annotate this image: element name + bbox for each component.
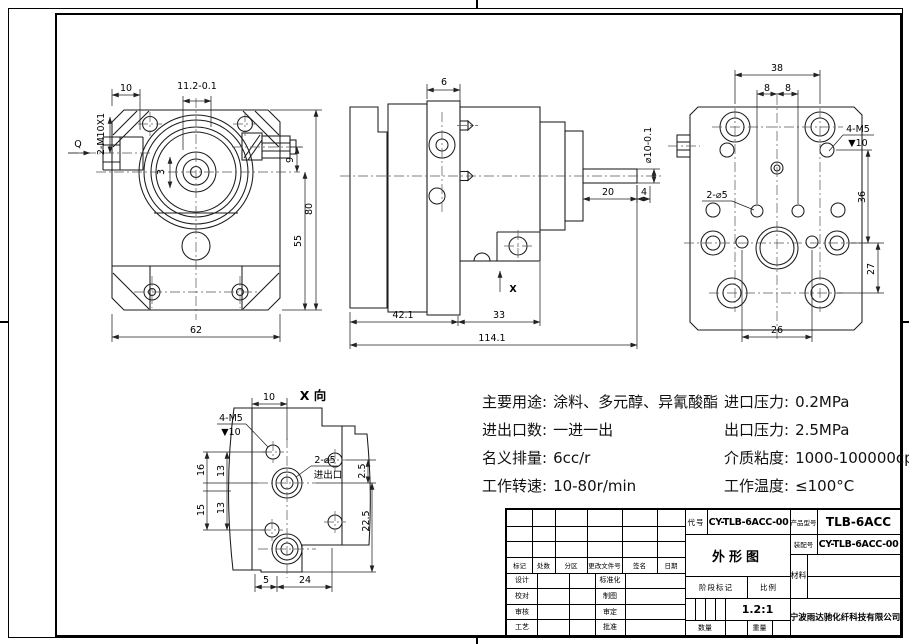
spec-label: 进口压力: xyxy=(724,393,789,411)
rear-dim-8a: 8 xyxy=(764,83,770,94)
weight-label: 重量 xyxy=(747,620,772,635)
spec-row-outlet-pressure: 出口压力:2.5MPa xyxy=(724,416,909,444)
rev-header-mark: 标记 xyxy=(507,557,532,573)
front-dim-80: 80 xyxy=(304,203,315,215)
divider xyxy=(625,573,626,636)
rear-note-m5-line2: ▼10 xyxy=(848,138,867,149)
sign-design-label: 设计 xyxy=(507,573,537,589)
sign-ratify-label: 审定 xyxy=(595,604,625,620)
spec-row-displacement: 名义排量:6cc/r xyxy=(482,444,718,472)
divider xyxy=(772,620,773,635)
spec-value: 涂料、多元醇、异氰酸酯 xyxy=(553,393,718,411)
side-dim-4: 4 xyxy=(641,187,647,198)
spec-value: 0.2MPa xyxy=(795,393,849,411)
rev-header-date: 日期 xyxy=(657,557,685,573)
spec-label: 主要用途: xyxy=(482,393,547,411)
company-name: 宁波雨达驰化纤科技有限公司 xyxy=(790,598,900,635)
spec-row-temperature: 工作温度:≤100°C xyxy=(724,472,909,500)
title-block: 标记 处数 分区 更改文件号 签名 日期 设计 标准化 校对 制图 审核 审定 … xyxy=(505,508,902,637)
sign-process-label: 工艺 xyxy=(507,619,537,635)
side-view-arrow-label: X xyxy=(509,284,517,295)
spec-value: 1000-100000cp xyxy=(795,449,909,467)
rear-view xyxy=(677,107,862,330)
assembly-number-value: CY-TLB-6ACC-00 xyxy=(817,534,900,554)
sign-check-label: 校对 xyxy=(507,588,537,604)
x-view-dim-16: 16 xyxy=(196,464,207,476)
sign-approve-label: 批准 xyxy=(595,619,625,635)
side-dim-6: 6 xyxy=(441,77,447,88)
divider xyxy=(705,598,706,620)
divider xyxy=(507,526,685,527)
side-dim-33: 33 xyxy=(493,310,505,321)
front-dim-62: 62 xyxy=(190,325,202,336)
front-dim-10: 10 xyxy=(120,83,132,94)
spec-value: 一进一出 xyxy=(553,421,613,439)
spec-value: ≤100°C xyxy=(795,477,854,495)
x-view-note-m5-line1: 4-M5 xyxy=(219,413,243,424)
x-view-dim-10: 10 xyxy=(263,392,275,403)
x-view-dim-13b: 13 xyxy=(216,502,227,514)
spec-column-right: 进口压力:0.2MPa 出口压力:2.5MPa 介质粘度:1000-100000… xyxy=(724,388,909,500)
code-value: CY-TLB-6ACC-00 xyxy=(707,510,790,534)
spec-row-ports: 进出口数:一进一出 xyxy=(482,416,718,444)
side-dim-42-1: 42.1 xyxy=(392,310,413,321)
spec-row-viscosity: 介质粘度:1000-100000cp xyxy=(724,444,909,472)
material-label: 材料 xyxy=(790,554,807,598)
quantity-label: 数量 xyxy=(685,620,725,635)
rear-dim-26: 26 xyxy=(771,325,783,336)
rear-dim-8b: 8 xyxy=(785,83,791,94)
rev-header-signature: 签名 xyxy=(622,557,657,573)
spec-value: 2.5MPa xyxy=(795,421,849,439)
divider xyxy=(695,598,696,620)
sign-draft-label: 制图 xyxy=(595,588,625,604)
rear-dim-36: 36 xyxy=(857,191,868,203)
x-view-dim-24: 24 xyxy=(299,575,311,586)
front-dim-55: 55 xyxy=(293,235,304,247)
x-view-note-d5: 2-⌀5 xyxy=(314,455,335,466)
side-view xyxy=(350,101,637,315)
front-view xyxy=(103,110,296,310)
rev-header-change-doc: 更改文件号 xyxy=(587,557,622,573)
x-direction-view xyxy=(229,408,371,572)
rev-header-zone: 分区 xyxy=(555,557,587,573)
rear-dim-27: 27 xyxy=(866,263,877,275)
front-thread-note: 2-M10X1 xyxy=(96,113,107,155)
front-q-label: Q xyxy=(74,139,81,150)
x-view-note-port: 进出口 xyxy=(314,469,343,481)
divider xyxy=(507,541,685,542)
drawing-sheet: 10 11.2-0.1 2-M10X1 Q 3 9 55 80 62 xyxy=(0,0,909,644)
side-shaft-dia: ⌀10-0.1 xyxy=(643,127,654,163)
x-view-note-m5-line2: ▼10 xyxy=(221,427,240,438)
front-dim-9: 9 xyxy=(285,157,296,163)
x-view-dim-22-5: 22.5 xyxy=(361,510,372,531)
assembly-number-label: 装配号 xyxy=(790,534,817,554)
spec-value: 10-80r/min xyxy=(553,477,636,495)
scale-label: 比例 xyxy=(747,576,790,598)
code-label: 代号 xyxy=(685,510,707,534)
spec-label: 出口压力: xyxy=(724,421,789,439)
x-view-dim-5: 5 xyxy=(263,575,269,586)
rear-view-centerlines xyxy=(668,95,868,342)
side-dim-20: 20 xyxy=(602,187,614,198)
divider xyxy=(537,573,538,636)
rear-dim-38: 38 xyxy=(771,63,783,74)
x-view-dim-13a: 13 xyxy=(216,465,227,477)
divider xyxy=(569,573,570,636)
divider xyxy=(715,598,716,620)
scale-value: 1.2:1 xyxy=(725,598,790,620)
rear-note-m5-line1: 4-M5 xyxy=(846,124,870,135)
product-model-label: 产品型号 xyxy=(790,510,817,534)
rev-header-count: 处数 xyxy=(532,557,555,573)
divider xyxy=(807,554,808,598)
divider xyxy=(807,576,900,577)
rear-note-d5: 2-⌀5 xyxy=(706,190,727,201)
x-view-dim-2-5: 2.5 xyxy=(357,463,368,478)
spec-column-left: 主要用途:涂料、多元醇、异氰酸酯 进出口数:一进一出 名义排量:6cc/r 工作… xyxy=(482,388,718,500)
stage-mark-label: 阶段标记 xyxy=(685,576,747,598)
front-dim-3: 3 xyxy=(156,169,167,175)
spec-label: 进出口数: xyxy=(482,421,547,439)
spec-label: 名义排量: xyxy=(482,449,547,467)
front-dim-11-2: 11.2-0.1 xyxy=(177,81,217,92)
side-dim-114-1: 114.1 xyxy=(478,333,505,344)
spec-row-speed: 工作转速:10-80r/min xyxy=(482,472,718,500)
x-view-title: X 向 xyxy=(300,388,327,403)
spec-label: 工作转速: xyxy=(482,477,547,495)
sign-standardization-label: 标准化 xyxy=(595,573,625,589)
spec-value: 6cc/r xyxy=(553,449,590,467)
spec-label: 工作温度: xyxy=(724,477,789,495)
spec-label: 介质粘度: xyxy=(724,449,789,467)
x-view-dim-15: 15 xyxy=(196,504,207,516)
sign-review-label: 审核 xyxy=(507,604,537,620)
spec-row-usage: 主要用途:涂料、多元醇、异氰酸酯 xyxy=(482,388,718,416)
spec-row-inlet-pressure: 进口压力:0.2MPa xyxy=(724,388,909,416)
product-model-value: TLB-6ACC xyxy=(817,510,900,534)
drawing-title: 外形图 xyxy=(685,534,790,576)
